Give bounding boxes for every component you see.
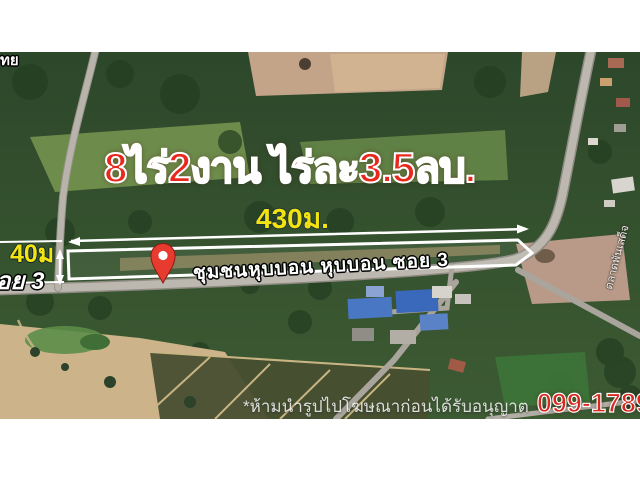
grass-patch-dark <box>80 334 110 350</box>
tree-blob <box>299 58 311 70</box>
left-road-name-label: อย 3 <box>0 269 45 294</box>
depth-measurement-label: 40ม <box>10 241 54 267</box>
satellite-terrain <box>0 52 640 419</box>
satellite-map <box>0 52 640 419</box>
watermark-disclaimer: *ห้ามนำรูปไปโฆษณาก่อนได้รับอนุญาต <box>243 393 529 420</box>
land-listing-screenshot: { "listing": { "title": "8ไร่2งาน ไร่ละ3… <box>0 0 640 480</box>
phone-number: 099-1789557 <box>537 388 640 419</box>
dirt-field-top-light <box>330 54 445 92</box>
listing-title: 8ไร่2งาน ไร่ละ3.5ลบ. <box>104 146 475 190</box>
bottom-margin <box>0 419 640 480</box>
bottom-note: *ห้ามนำรูปไปโฆษณาก่อนได้รับอนุญาต 099-17… <box>243 388 640 420</box>
width-measurement-label: 430ม. <box>256 204 329 233</box>
top-margin <box>0 0 640 52</box>
top-left-partial-label: ทย <box>0 53 19 69</box>
